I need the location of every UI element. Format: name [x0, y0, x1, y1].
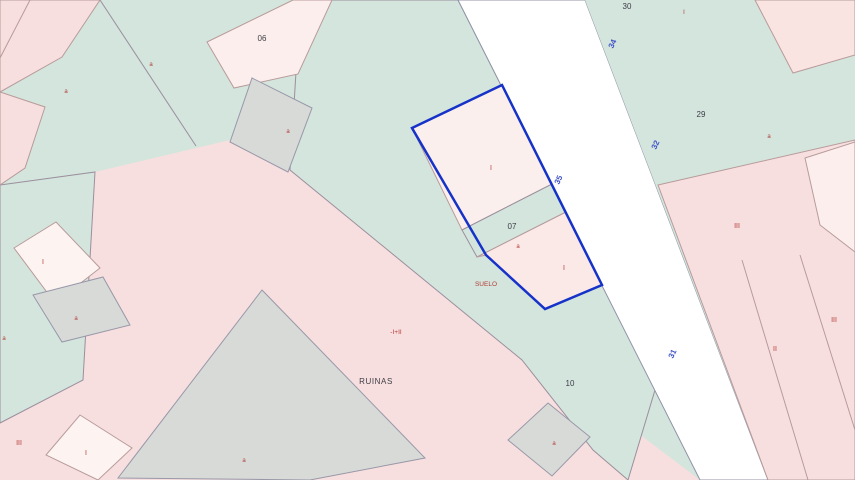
parcel-number-30: 30 [623, 2, 632, 11]
parcel-number-29: 29 [697, 110, 706, 119]
map-canvas[interactable]: 06 07 10 29 30 34 32 35 31 RUINAS SUELO … [0, 0, 855, 480]
parcel-number-06: 06 [258, 34, 267, 43]
parcel-number-10: 10 [566, 379, 575, 388]
cadastral-map[interactable]: 06 07 10 29 30 34 32 35 31 RUINAS SUELO … [0, 0, 855, 480]
parcel-number-07: 07 [508, 222, 517, 231]
subparcel-code: III [831, 317, 837, 324]
subparcel-code: I [490, 165, 492, 172]
ruins-label: RUINAS [359, 377, 393, 386]
subparcel-code: I [42, 259, 44, 266]
ground-label: SUELO [475, 281, 497, 288]
subparcel-code: I [85, 450, 87, 457]
subparcel-code: II [773, 346, 777, 353]
subparcel-code: III [734, 223, 740, 230]
subparcel-code: III [16, 440, 22, 447]
subparcel-code: I [563, 265, 565, 272]
height-label: -I+II [390, 329, 402, 336]
